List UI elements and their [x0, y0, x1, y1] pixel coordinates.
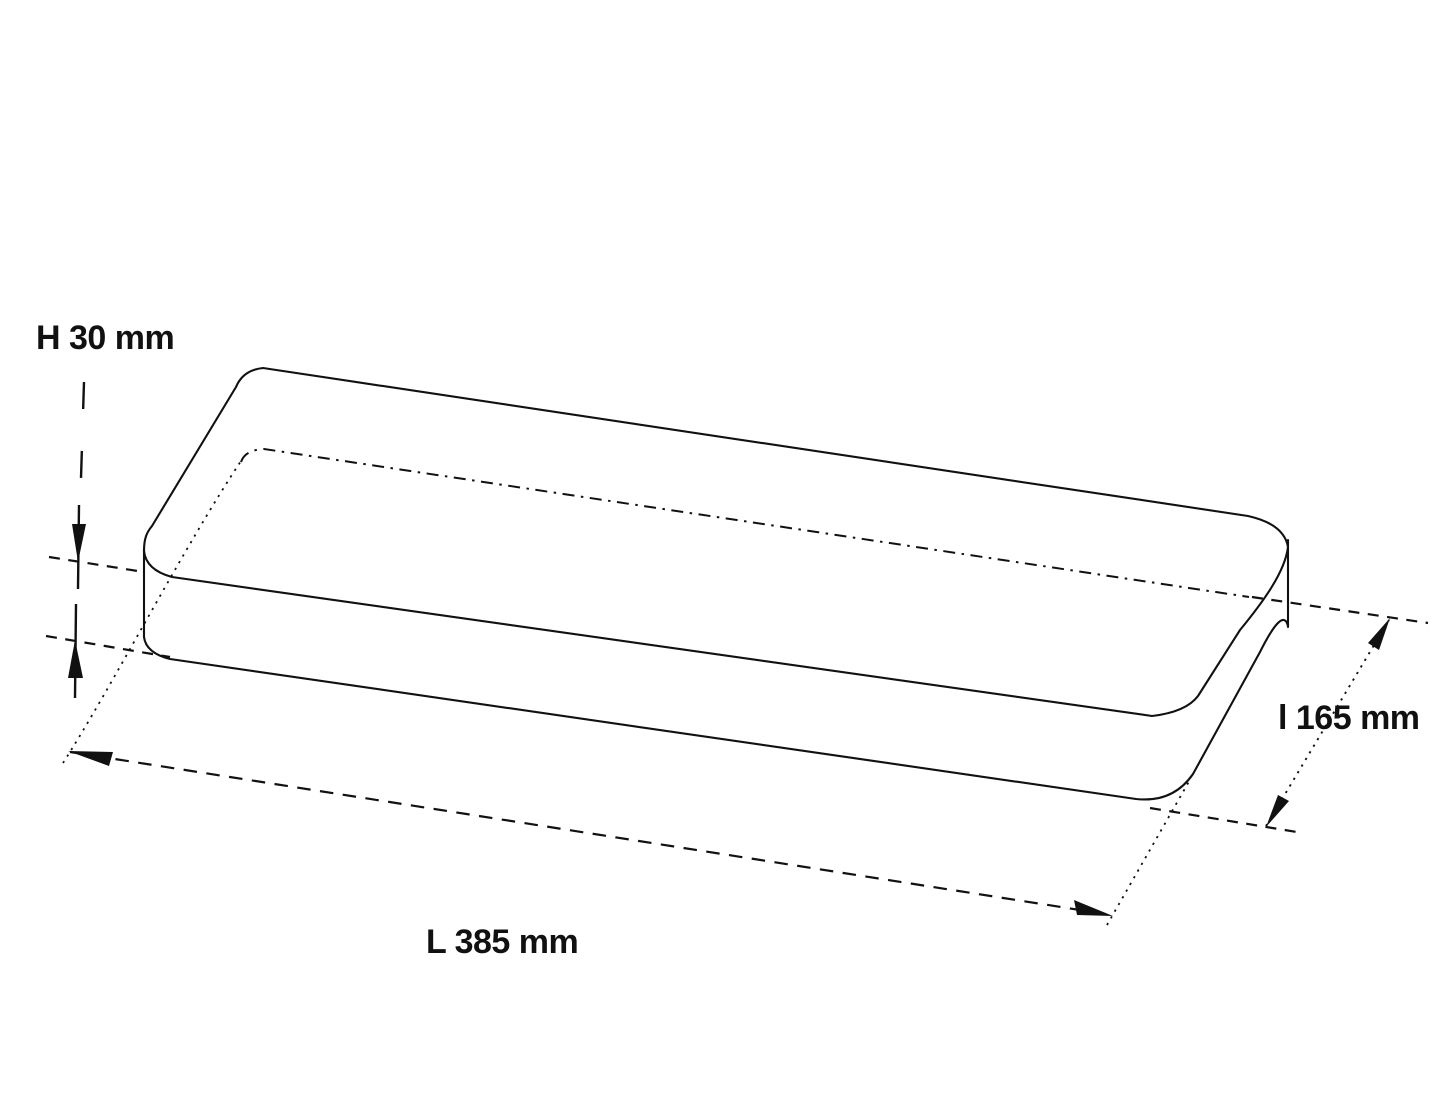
technical-drawing-canvas: H 30 mm L 385 mm l 165 mm	[0, 0, 1440, 1099]
slab-bottom-outline	[144, 620, 1288, 800]
height-dim-label: H 30 mm	[36, 320, 174, 357]
depth-arrow-bottom	[1266, 795, 1289, 827]
length-dim-label: L 385 mm	[426, 924, 578, 961]
length-arrow-right	[1074, 900, 1113, 916]
height-dim-line-dashed	[81, 382, 84, 478]
hidden-inner-edge-dashdot	[241, 449, 1249, 597]
depth-dim-label: l 165 mm	[1278, 700, 1420, 737]
slab-top-face-outline	[144, 368, 1288, 716]
length-arrow-left	[68, 751, 113, 766]
height-ext-line-bottom	[46, 636, 170, 657]
height-arrow-down	[72, 524, 86, 562]
hidden-extension-left-dotted	[63, 461, 241, 763]
slab-dimension-drawing	[0, 0, 1440, 1099]
depth-arrow-top	[1368, 618, 1390, 650]
depth-ext-line-bottom	[1150, 808, 1303, 833]
depth-ext-line-top	[1252, 597, 1428, 623]
length-dim-line-dashed	[70, 752, 1112, 915]
height-ext-line-top	[49, 557, 144, 572]
height-arrow-up	[68, 640, 83, 678]
length-dimension	[68, 751, 1113, 916]
